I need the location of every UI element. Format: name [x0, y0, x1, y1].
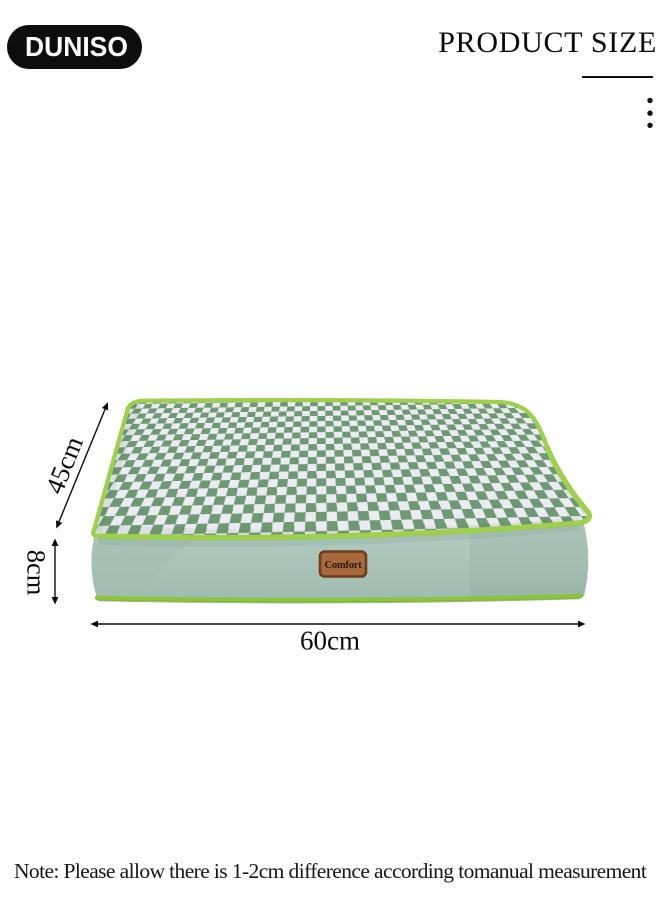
svg-text:60cm: 60cm [300, 626, 360, 656]
svg-text:8cm: 8cm [22, 550, 52, 596]
svg-text:Comfort: Comfort [324, 560, 362, 571]
